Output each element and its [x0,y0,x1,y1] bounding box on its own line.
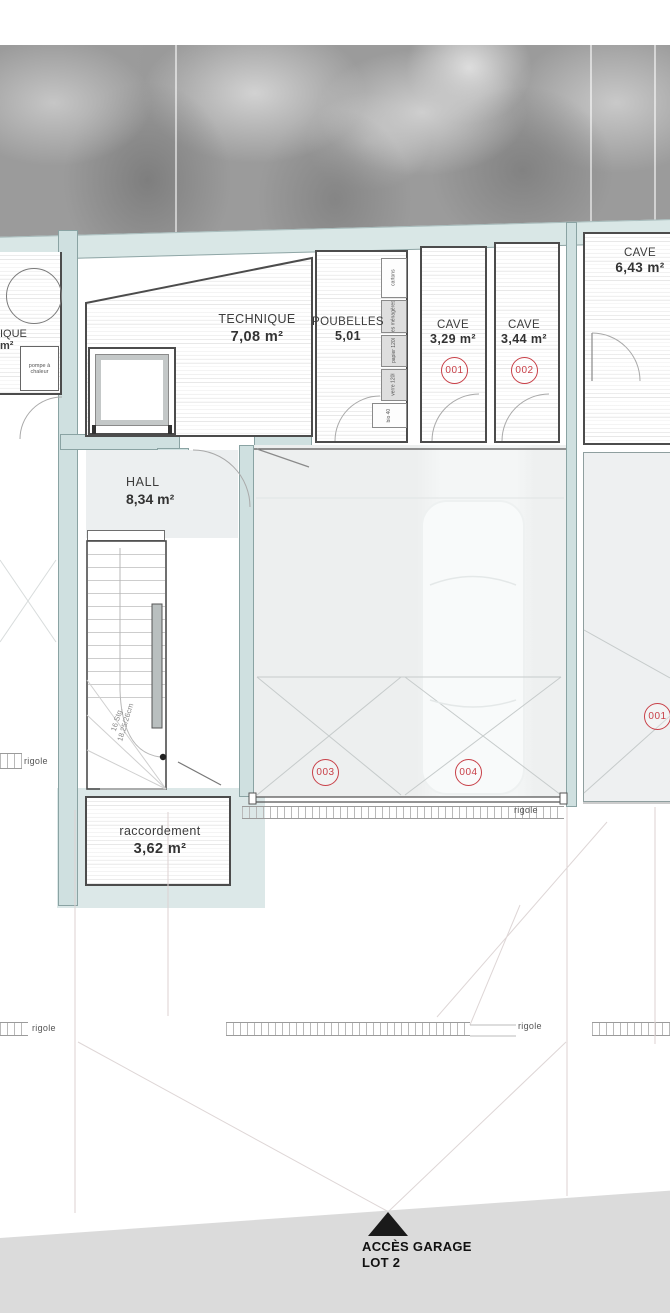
cave-right-label: CAVE 6,43 m² [600,246,670,277]
unit-tag-001: 001 [441,357,468,384]
poubelles-name: POUBELLES [303,315,393,329]
unit-tag-003: 003 [312,759,339,786]
poubelles-area: 5,01 [303,329,393,345]
garage-access-arrow [368,1212,408,1236]
raccordement-label: raccordement 3,62 m² [95,824,225,858]
garage-access-line2: LOT 2 [362,1255,492,1271]
garage-access-label: ACCÈS GARAGE LOT 2 [362,1239,492,1272]
garage-access-line1: ACCÈS GARAGE [362,1239,492,1255]
rigole-label: rigole [32,1023,56,1033]
cave-001-area: 3,29 m² [413,332,493,348]
cave-002-area: 3,44 m² [484,332,564,348]
hall-name: HALL [126,474,216,490]
hall-area: 8,34 m² [126,490,216,508]
cave-002-name: CAVE [484,318,564,332]
cave-001-label: CAVE 3,29 m² [413,318,493,348]
poubelles-label: POUBELLES 5,01 [303,315,393,345]
unit-tag-004: 004 [455,759,482,786]
plan-linework [0,0,670,1313]
cave-002-label: CAVE 3,44 m² [484,318,564,348]
raccordement-area: 3,62 m² [95,840,225,858]
unit-tag-right: 001 [644,703,670,730]
floor-plan: IQUE m² pompe à chaleur cartons ordures … [0,0,670,1313]
unit-tag-002: 002 [511,357,538,384]
rigole-label: rigole [24,756,48,766]
cave-right-name: CAVE [600,246,670,260]
rigole-label: rigole [514,805,538,815]
rigole-label: rigole [518,1021,542,1031]
cave-right-area: 6,43 m² [600,260,670,277]
cave-001-name: CAVE [413,318,493,332]
raccordement-name: raccordement [95,824,225,840]
hall-label: HALL 8,34 m² [126,474,216,508]
